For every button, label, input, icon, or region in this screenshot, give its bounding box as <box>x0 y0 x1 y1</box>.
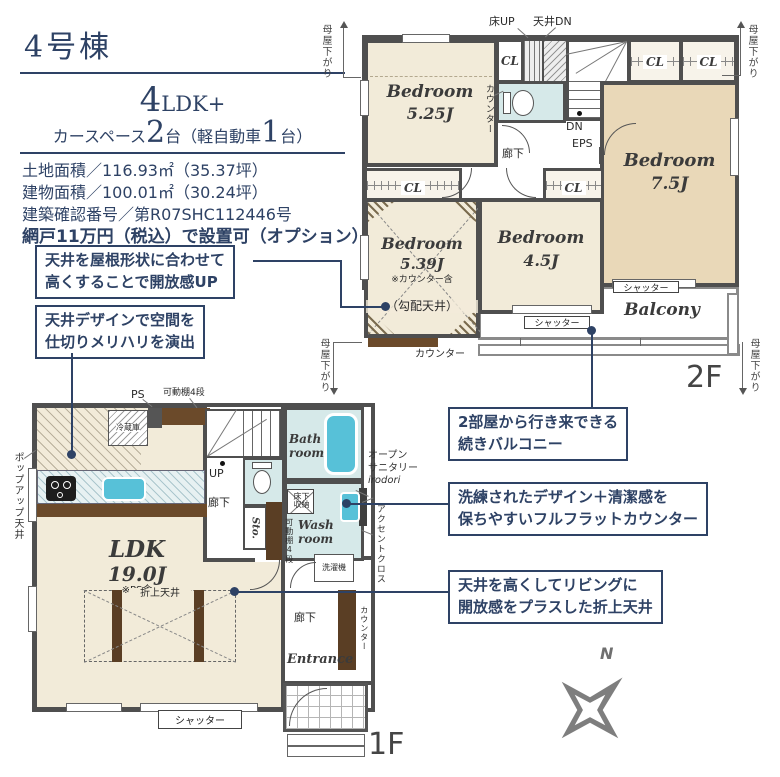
counter-strip <box>368 338 438 347</box>
plan-type: 4LDK+ <box>20 80 345 120</box>
moya-sagari-label: 母屋下がり <box>318 338 329 402</box>
connector-line <box>591 332 593 407</box>
ldk-name: LDK <box>100 536 174 563</box>
down-label: DN <box>566 121 583 133</box>
balcony-side-post <box>727 293 739 355</box>
callout-balcony: 2部屋から行き来できる 続きバルコニー <box>448 407 628 461</box>
bathroom-label-line: room <box>289 446 324 460</box>
hall-counter-label: カウンター <box>359 606 368 662</box>
moya-sagari-label: 母屋下がり <box>746 24 757 88</box>
closet-label: CL <box>401 181 425 195</box>
divider <box>20 152 345 154</box>
arrow-up-icon <box>340 21 348 28</box>
bedroom-5-25-name: Bedroom <box>368 82 492 102</box>
shutter-label: シャッター <box>613 281 679 293</box>
callout-line: 高くすることで開放感UP <box>45 272 225 294</box>
connector-line <box>348 503 448 505</box>
moya-arrow-line <box>740 28 741 76</box>
ldk-size: 19.0J <box>100 562 174 586</box>
washroom-label-line: room <box>298 532 334 546</box>
callout-line: 洗練されたデザイン＋清潔感を <box>458 487 698 509</box>
refrigerator-label: 冷蔵庫 <box>116 424 140 433</box>
hallway-label-2f: 廊下 <box>502 148 524 160</box>
eps-label: EPS <box>572 138 593 150</box>
shutter-label: シャッター <box>524 316 590 329</box>
storage-label: Sto. <box>250 517 261 539</box>
open-sanitary-label: オープン サニタリー irodori <box>368 450 418 488</box>
floorplan-flyer: 4号棟 4LDK+ カースペース2台（軽自動車1台） 土地面積／116.93㎡（… <box>0 0 780 777</box>
callout-line: 天井を屋根形状に合わせて <box>45 250 225 272</box>
window <box>402 34 450 43</box>
callout-sloped-ceiling: 天井を屋根形状に合わせて 高くすることで開放感UP <box>35 245 235 299</box>
car-num1: 2 <box>146 115 165 150</box>
divider <box>20 72 345 74</box>
compass-rose-icon <box>535 652 645 762</box>
arrow-down-icon <box>330 388 338 395</box>
bathroom-label-line: Bath <box>289 432 324 446</box>
page-title: 4号棟 <box>24 22 112 66</box>
refrigerator: 冷蔵庫 <box>108 410 148 446</box>
window <box>66 703 122 712</box>
bedroom-5-25 <box>364 39 498 167</box>
callout-line: 開放感をプラスした折上天井 <box>458 597 653 619</box>
wall <box>203 558 255 562</box>
connector-dot <box>230 587 239 596</box>
stove-burner <box>57 492 63 498</box>
ceiling-beam <box>194 590 204 662</box>
floor2-label: 2F <box>686 360 722 395</box>
bedroom-4-5-size: 4.5J <box>480 251 602 270</box>
floor1-label: 1F <box>368 727 404 762</box>
connector-line <box>340 260 342 308</box>
closet-strip <box>266 502 282 560</box>
bathtub <box>324 413 358 475</box>
open-sanitary-line: irodori <box>368 475 418 488</box>
connector-line <box>253 260 342 262</box>
underfloor-storage-label: 床下 収納 <box>288 493 314 510</box>
kitchen-sink <box>102 477 146 501</box>
stove-burner <box>63 481 71 489</box>
arrow-down-icon <box>739 388 747 395</box>
moya-connector <box>343 77 361 78</box>
counter-label-vertical: カウンター <box>483 84 493 136</box>
shelf-vertical-label: 可動棚4段 <box>284 518 293 570</box>
storage-room: Sto. <box>243 506 267 550</box>
land-area: 土地面積／116.93㎡（35.37坪） <box>22 160 369 182</box>
ceiling-down-label: 天井DN <box>533 16 572 28</box>
shutter-window <box>512 305 592 314</box>
up-label: UP <box>209 468 224 480</box>
bedroom-4-5-name: Bedroom <box>480 228 602 248</box>
callout-line: 天井デザインで空間を <box>45 310 195 332</box>
closet-label: CL <box>697 55 721 69</box>
bedroom-5-39-name: Bedroom <box>366 234 478 253</box>
moya-connector <box>722 75 741 76</box>
entrance-step <box>287 734 365 746</box>
window <box>730 118 739 176</box>
closet-label-wrap: CL <box>543 177 604 196</box>
closet-label: CL <box>562 181 586 195</box>
ceiling-dash-line <box>370 76 492 77</box>
connector-dot <box>67 450 76 459</box>
stair-dot <box>577 111 582 116</box>
moya-sagari-label: 母屋下がり <box>320 24 331 88</box>
washroom-label: Wash room <box>298 518 334 547</box>
closet-label: CL <box>643 55 667 69</box>
accent-cloth-label: アクセントクロス <box>374 504 384 584</box>
callout-coffered-ceiling: 天井を高くしてリビングに 開放感をプラスした折上天井 <box>448 570 663 624</box>
underfloor-storage: 床下 収納 <box>287 489 314 514</box>
connector-dot <box>587 326 596 335</box>
moya-arrow-line <box>333 342 334 388</box>
car-suffix: 台） <box>280 127 312 146</box>
washing-machine-label: 洗濯機 <box>322 564 346 573</box>
window <box>28 468 37 522</box>
car-mid: 台（軽自動車 <box>165 127 261 146</box>
connector-line <box>340 306 386 308</box>
underfloor-label-line: 収納 <box>288 501 314 509</box>
toilet-bowl <box>253 470 271 494</box>
floor-up-hatch <box>522 39 544 83</box>
window <box>360 80 369 116</box>
entrance-label: Entrance <box>287 652 353 667</box>
permit-number: 建築確認番号／第R07SHC112446号 <box>22 204 369 226</box>
balcony-railing <box>478 344 740 356</box>
callout-ceiling-design: 天井デザインで空間を 仕切りメリハリを演出 <box>35 305 205 359</box>
open-sanitary-line: サニタリー <box>368 463 418 476</box>
callout-line: 天井を高くしてリビングに <box>458 575 653 597</box>
callout-flat-counter: 洗練されたデザイン＋清潔感を 保ちやすいフルフラットカウンター <box>448 482 708 536</box>
connector-line <box>71 353 73 453</box>
bedroom-5-39-size: 5.39J <box>366 255 478 273</box>
closet-label-wrap: CL <box>680 51 737 70</box>
car-space-line: カースペース2台（軽自動車1台） <box>20 115 345 150</box>
arrow-up-icon <box>737 21 745 28</box>
shelf-label: 可動棚4段 <box>163 389 205 399</box>
stairs-1f-treads <box>243 411 280 456</box>
moya-arrow-line <box>742 342 743 388</box>
closet-label-wrap: CL <box>628 51 682 70</box>
washroom-label-line: Wash <box>298 518 334 532</box>
closet: CL <box>496 39 524 83</box>
closet-label: CL <box>498 54 522 68</box>
property-details: 土地面積／116.93㎡（35.37坪） 建物面積／100.01㎡（30.24坪… <box>22 160 369 250</box>
railing-tick <box>640 338 641 346</box>
callout-line: 仕切りメリハリを演出 <box>45 332 195 354</box>
toilet-tank <box>252 462 272 469</box>
car-num2: 1 <box>261 115 280 150</box>
pipe-shaft <box>148 408 162 428</box>
ceiling-down-hatch <box>542 39 568 83</box>
moya-connector <box>333 342 362 343</box>
balcony-label: Balcony <box>612 300 712 320</box>
popup-ceiling-label: ポップアップ天井 <box>12 452 23 570</box>
ceiling-beam <box>112 590 122 662</box>
hallway-upper-label: 廊下 <box>208 497 230 509</box>
bedroom-7-5-size: 7.5J <box>602 174 737 194</box>
bedroom-5-39-note: ※カウンター含 <box>366 276 478 286</box>
stair-dot <box>220 461 225 466</box>
bedroom-5-25-size: 5.25J <box>368 104 492 123</box>
callout-line: 保ちやすいフルフラットカウンター <box>458 509 698 531</box>
connector-line <box>237 591 448 593</box>
connector-dot <box>381 302 390 311</box>
window <box>360 235 369 280</box>
connector-dot <box>342 499 351 508</box>
moya-sagari-label: 母屋下がり <box>748 338 759 402</box>
floor-up-label: 床UP <box>489 16 515 28</box>
compass-north-label: N <box>600 644 613 663</box>
entrance-step <box>287 746 365 757</box>
toilet-bowl <box>512 90 534 116</box>
toilet-tank <box>503 92 511 114</box>
hallway-lower-label: 廊下 <box>294 612 316 624</box>
building-area: 建物面積／100.01㎡（30.24坪） <box>22 182 369 204</box>
shelf-strip <box>162 408 210 425</box>
car-prefix: カースペース <box>53 127 146 146</box>
callout-line: 続きバルコニー <box>458 434 618 456</box>
bathroom-label: Bath room <box>289 432 324 461</box>
counter-front-strip <box>37 504 207 517</box>
window <box>28 586 37 632</box>
shutter-label: シャッター <box>158 710 242 729</box>
callout-line: 2部屋から行き来できる <box>458 412 618 434</box>
plan-rest: LDK+ <box>161 92 225 116</box>
washing-machine: 洗濯機 <box>314 554 354 582</box>
counter-label-bottom: カウンター <box>415 349 465 360</box>
railing-tick <box>520 338 521 346</box>
moya-arrow-line <box>343 28 344 78</box>
plan-num: 4 <box>140 80 162 120</box>
open-sanitary-line: オープン <box>368 450 418 463</box>
coffered-ceiling-label: 折上天井 <box>129 588 191 599</box>
stove-burner <box>51 481 59 489</box>
